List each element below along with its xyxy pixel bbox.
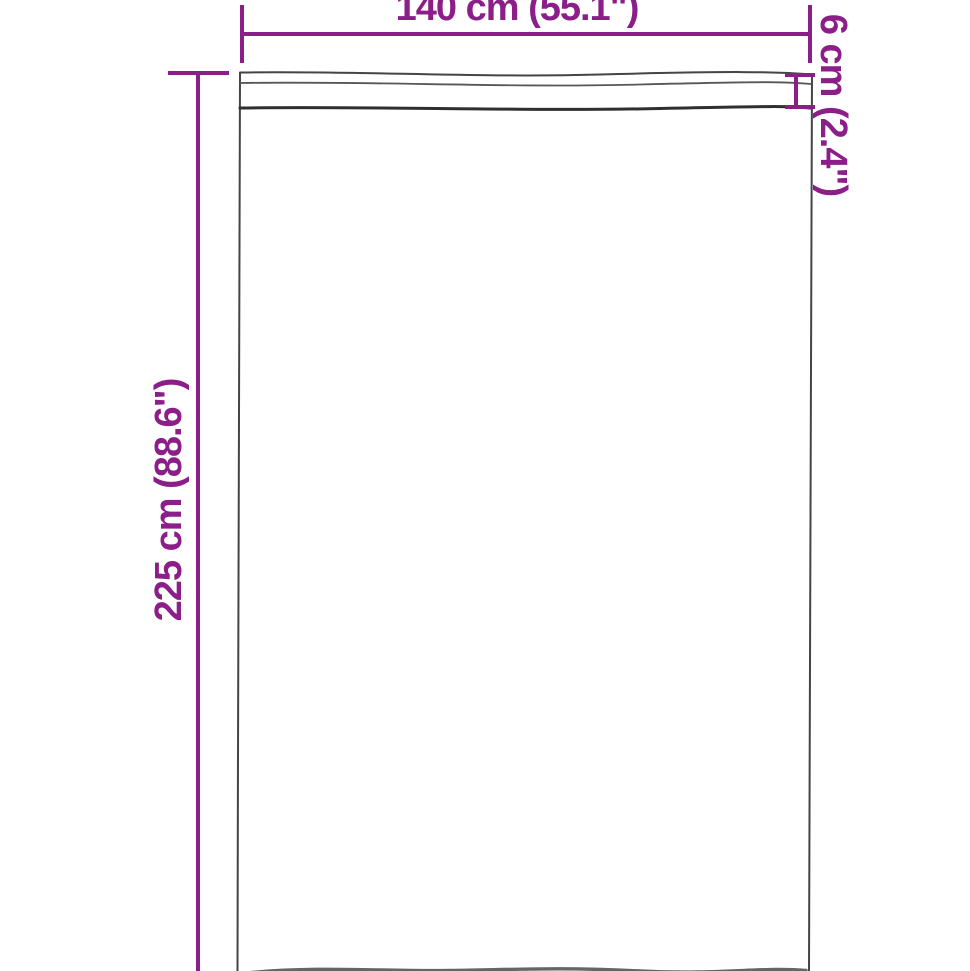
curtain-outline	[238, 72, 813, 971]
curtain-dimension-diagram: 140 cm (55.1") 225 cm (88.6") 6 cm (2.4"…	[0, 0, 970, 971]
width-dimension-label: 140 cm (55.1")	[235, 0, 799, 27]
curtain-top-edge	[240, 72, 812, 75]
rod-pocket-bottom-seam-line	[240, 107, 810, 110]
height-dimension-label: 225 cm (88.6")	[150, 379, 188, 622]
curtain-right-edge	[809, 75, 812, 971]
curtain-left-edge	[238, 73, 241, 971]
pocket-depth-dimension	[787, 75, 813, 107]
pocket-depth-dimension-label: 6 cm (2.4")	[814, 14, 852, 196]
rod-pocket-top-seam-line	[240, 82, 811, 85]
